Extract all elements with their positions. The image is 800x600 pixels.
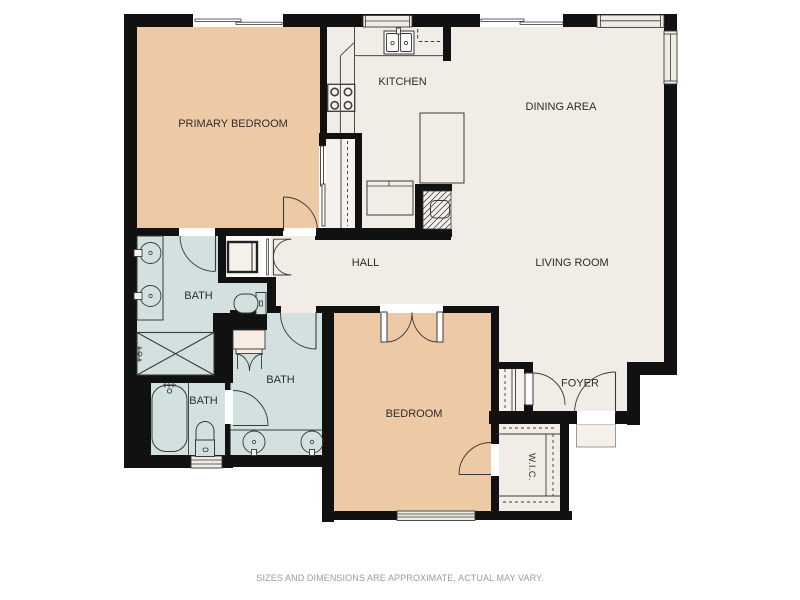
svg-text:BATH: BATH: [184, 290, 213, 302]
svg-text:KITCHEN: KITCHEN: [378, 76, 426, 88]
svg-text:SIZES AND DIMENSIONS ARE APPRO: SIZES AND DIMENSIONS ARE APPROXIMATE, AC…: [256, 573, 543, 583]
svg-text:W.I.C.: W.I.C.: [526, 453, 537, 481]
svg-text:LIVING ROOM: LIVING ROOM: [535, 257, 608, 269]
svg-text:DINING AREA: DINING AREA: [526, 101, 598, 113]
svg-text:HALL: HALL: [352, 257, 380, 269]
svg-text:BATH: BATH: [266, 374, 295, 386]
svg-text:FOYER: FOYER: [561, 378, 599, 390]
svg-text:BATH: BATH: [189, 395, 218, 407]
svg-text:PRIMARY BEDROOM: PRIMARY BEDROOM: [178, 118, 288, 130]
svg-text:BEDROOM: BEDROOM: [386, 408, 443, 420]
